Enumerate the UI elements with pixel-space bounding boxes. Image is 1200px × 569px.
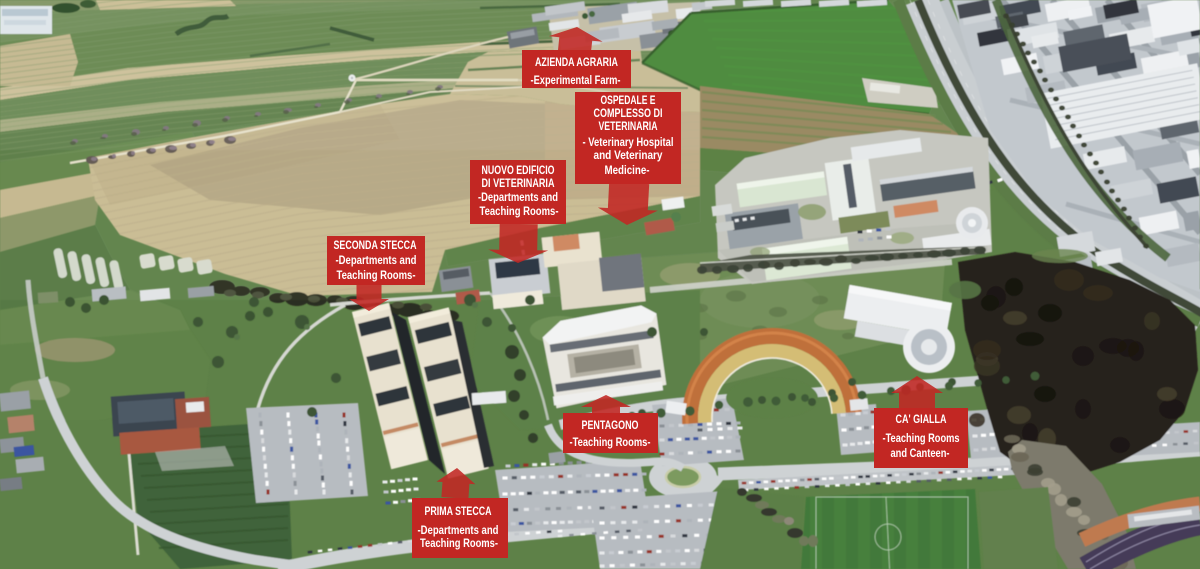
svg-text:Teaching Rooms-: Teaching Rooms-: [337, 270, 416, 282]
svg-text:Teaching Rooms-: Teaching Rooms-: [420, 538, 498, 550]
svg-text:-Experimental Farm-: -Experimental Farm-: [531, 75, 621, 87]
svg-text:PENTAGONO: PENTAGONO: [582, 420, 639, 432]
svg-text:NUOVO EDIFICIO: NUOVO EDIFICIO: [482, 165, 555, 177]
svg-text:AZIENDA AGRARIA: AZIENDA AGRARIA: [535, 57, 618, 69]
svg-text:-Teaching Rooms: -Teaching Rooms: [883, 433, 960, 445]
svg-text:VETERINARIA: VETERINARIA: [599, 121, 658, 133]
svg-text:Teaching Rooms-: Teaching Rooms-: [480, 206, 559, 218]
svg-text:DI VETERINARIA: DI VETERINARIA: [482, 178, 555, 190]
svg-text:- Veterinary Hospital: - Veterinary Hospital: [583, 137, 674, 149]
svg-text:and Veterinary: and Veterinary: [594, 150, 664, 162]
svg-text:Medicine-: Medicine-: [605, 165, 650, 177]
svg-text:-Departments and: -Departments and: [336, 255, 417, 267]
svg-text:-Departments and: -Departments and: [478, 192, 558, 204]
svg-text:OSPEDALE E: OSPEDALE E: [601, 95, 656, 107]
svg-text:CA' GIALLA: CA' GIALLA: [896, 414, 947, 426]
svg-text:PRIMA STECCA: PRIMA STECCA: [425, 506, 492, 518]
svg-text:-Teaching Rooms-: -Teaching Rooms-: [570, 437, 651, 449]
svg-text:-Departments and: -Departments and: [418, 525, 499, 537]
svg-text:SECONDA STECCA: SECONDA STECCA: [334, 240, 417, 252]
svg-text:COMPLESSO DI: COMPLESSO DI: [594, 108, 663, 120]
svg-text:and Canteen-: and Canteen-: [891, 448, 950, 460]
